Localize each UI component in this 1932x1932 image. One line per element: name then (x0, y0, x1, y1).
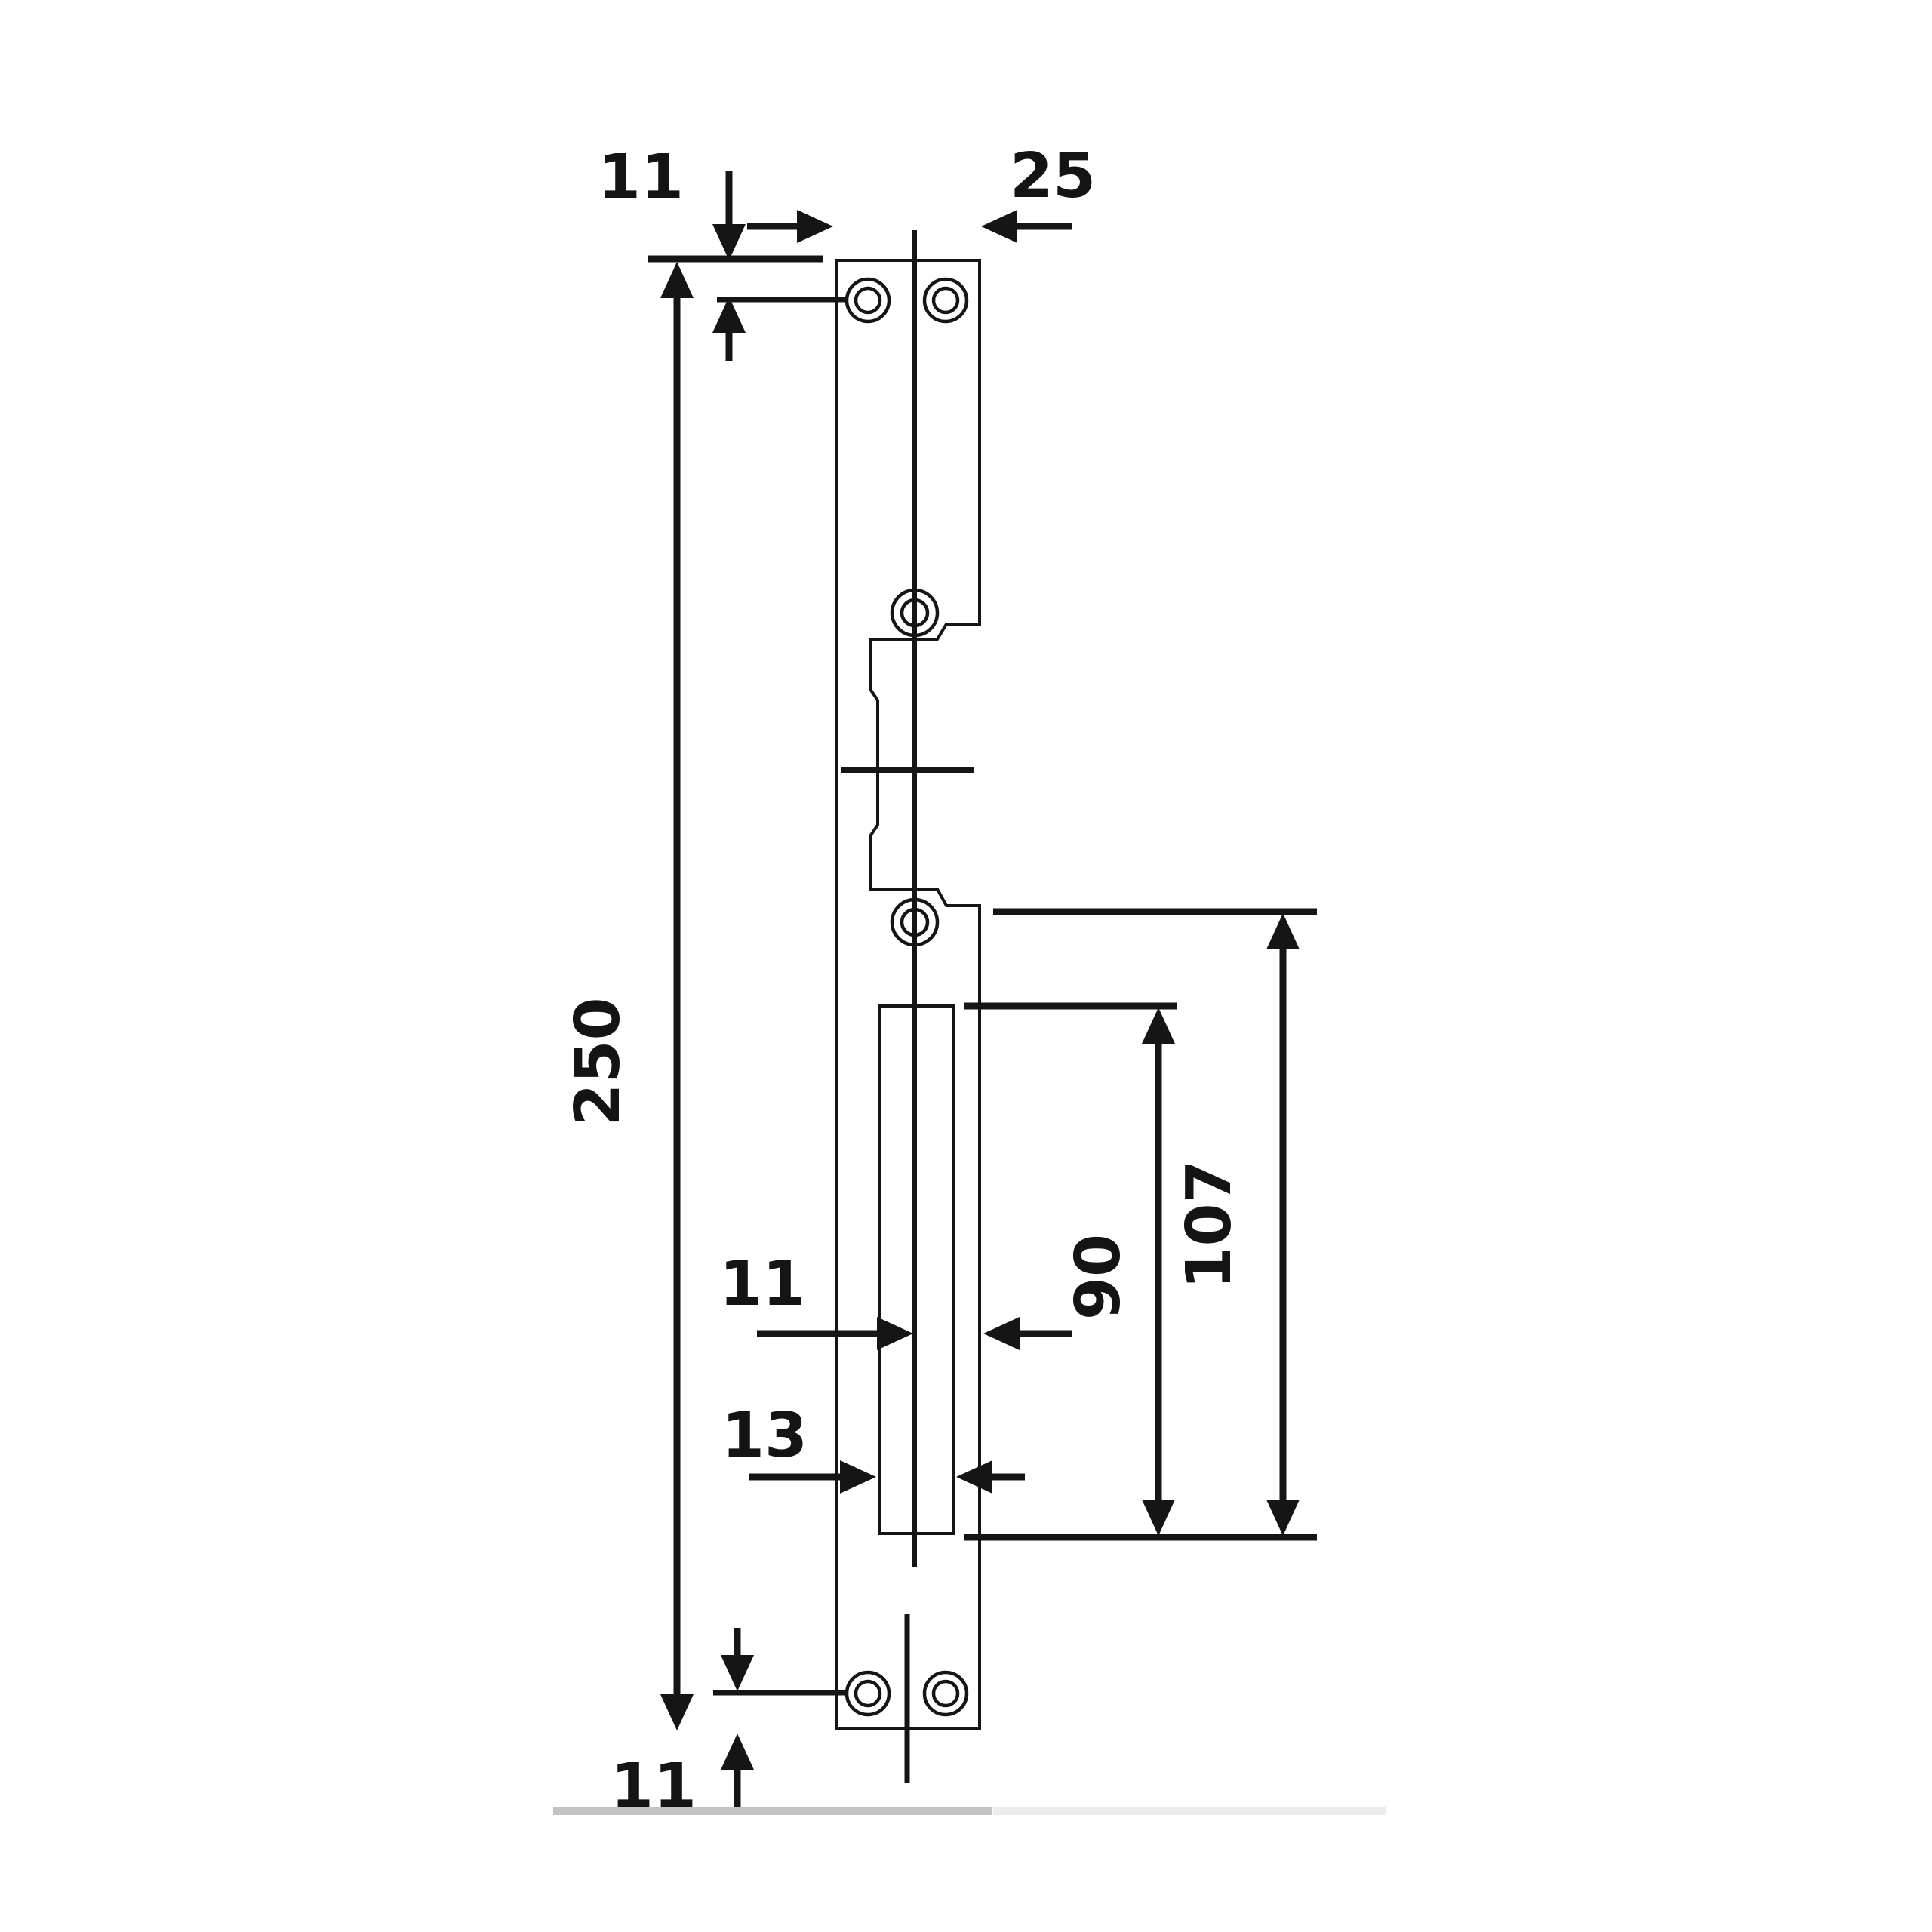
arrowhead-left-icon (981, 210, 1017, 243)
screw-hole-inner (856, 288, 880, 312)
dimension-plate-length: 250 (562, 262, 694, 1730)
arrowhead-down-icon (712, 224, 746, 260)
screw-holes (847, 279, 967, 1715)
screw-hole-inner (856, 1681, 880, 1706)
arrowhead-down-icon (1142, 1500, 1175, 1536)
arrowhead-right-icon (877, 1317, 913, 1350)
screw-hole-inner (934, 1681, 958, 1706)
strike-plate-technical-drawing: 25 11 250 90 107 (0, 0, 1932, 1932)
dimension-center-to-edge: 11 (719, 1248, 1072, 1350)
dimension-plate-width: 25 (747, 140, 1096, 243)
dimension-label-plate-length: 250 (562, 997, 634, 1126)
dimension-shoulder-to-opening: 107 (1174, 913, 1300, 1536)
arrowhead-down-icon (721, 1655, 754, 1691)
screw-hole-outer (924, 279, 967, 321)
screw-hole-inner (934, 288, 958, 312)
dimension-label-plate-width: 25 (1010, 140, 1096, 212)
dimension-label-opening-height: 90 (1063, 1234, 1134, 1320)
screw-hole-bottom-left (847, 1672, 889, 1715)
dimension-opening-height: 90 (1063, 1008, 1175, 1536)
arrowhead-up-icon (660, 262, 694, 298)
screw-hole-top-right (924, 279, 967, 321)
dimension-label-hole-offset-top: 11 (598, 142, 684, 214)
arrowhead-down-icon (660, 1694, 694, 1730)
plate-outline (836, 260, 980, 1729)
dimension-hole-offset-bottom: 11 (611, 1628, 754, 1823)
dimension-label-center-to-edge: 11 (719, 1248, 805, 1320)
arrowhead-right-icon (840, 1460, 876, 1494)
screw-hole-bottom-right (924, 1672, 967, 1715)
screw-hole-top-left (847, 279, 889, 321)
arrowhead-up-icon (721, 1734, 754, 1770)
arrowhead-left-icon (983, 1317, 1020, 1350)
arrowhead-down-icon (1266, 1500, 1300, 1536)
arrowhead-left-icon (956, 1460, 992, 1494)
screw-hole-outer (924, 1672, 967, 1715)
arrowhead-up-icon (1266, 913, 1300, 949)
arrowhead-up-icon (1142, 1008, 1175, 1044)
screw-hole-outer (847, 1672, 889, 1715)
dimension-label-shoulder-to-opening: 107 (1174, 1160, 1245, 1289)
arrowhead-right-icon (797, 210, 833, 243)
dimension-hole-offset-top: 11 (598, 142, 746, 361)
dimension-label-opening-width: 13 (721, 1400, 808, 1472)
screw-hole-outer (847, 279, 889, 321)
technical-drawing-page: 25 11 250 90 107 (0, 0, 1932, 1932)
plate-body (836, 260, 980, 1729)
